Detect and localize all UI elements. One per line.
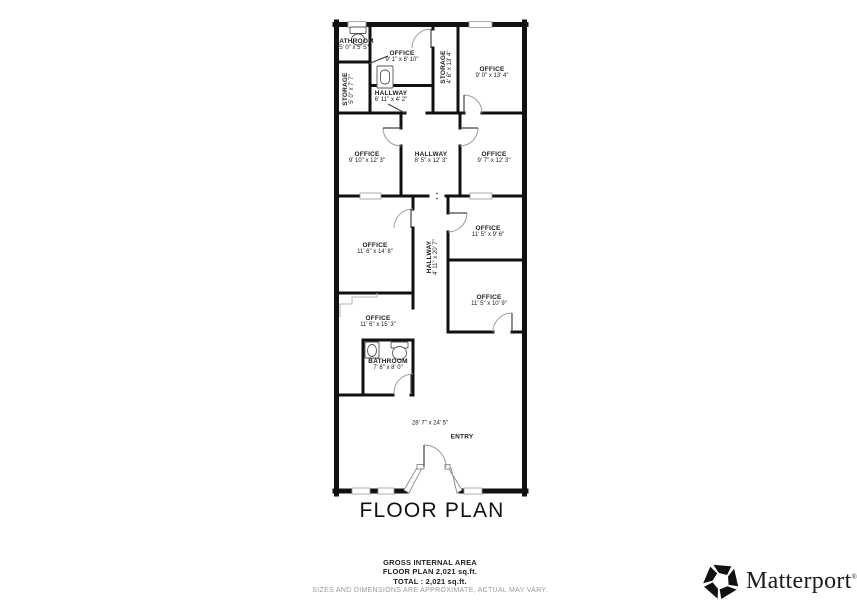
room-dimensions: 9' 1" x 8' 10": [386, 57, 419, 64]
opening-markers: [436, 193, 438, 200]
room-name: HALLWAY: [426, 239, 433, 275]
floor-plan-area-value: FLOOR PLAN 2,021 sq.ft.: [312, 567, 547, 576]
room-label: OFFICE9' 10" x 12' 3": [349, 151, 385, 165]
room-name: ENTRY: [451, 434, 474, 441]
room-dimensions: 11' 5" x 10' 9": [471, 301, 507, 308]
room-label: HALLWAY8' 5" x 12' 3": [415, 151, 448, 165]
room-name: STORAGE: [440, 50, 447, 83]
room-name: BATHROOM: [334, 38, 373, 45]
room-name: HALLWAY: [375, 90, 408, 97]
room-label: STORAGE4' 6" x 13' 4": [440, 50, 454, 83]
room-name: OFFICE: [472, 225, 504, 232]
room-name: OFFICE: [471, 294, 507, 301]
water-heater-icon: [377, 66, 393, 88]
room-label: OFFICE11' 5" x 10' 9": [471, 294, 507, 308]
disclaimer-text: SIZES AND DIMENSIONS ARE APPROXIMATE, AC…: [312, 586, 547, 596]
room-label: OFFICE11' 6" x 14' 8": [357, 242, 393, 256]
room-name: HALLWAY: [415, 151, 448, 158]
room-name: BATHROOM: [368, 358, 407, 365]
room-label: HALLWAY4' 11" x 20' 7": [426, 239, 440, 275]
footer: GROSS INTERNAL AREA FLOOR PLAN 2,021 sq.…: [312, 558, 547, 596]
gross-internal-area-label: GROSS INTERNAL AREA: [312, 558, 547, 567]
room-label: OFFICE11' 5" x 9' 6": [472, 225, 504, 239]
total-area-value: TOTAL : 2,021 sq.ft.: [312, 577, 547, 586]
room-dimensions: 5' 0" x 7' 7": [349, 72, 356, 105]
room-dimensions: 8' 5" x 12' 3": [415, 158, 448, 165]
room-dimensions: 9' 0" x 13' 4": [476, 73, 509, 80]
room-dimensions: 4' 11" x 20' 7": [433, 239, 440, 275]
room-dimensions: 7' 8" x 8' 0": [368, 365, 407, 372]
room-dimensions: 4' 6" x 13' 4": [447, 50, 454, 83]
room-label: OFFICE9' 1" x 8' 10": [386, 50, 419, 64]
matterport-logo: Matterport®: [702, 562, 857, 600]
sink-icon: [365, 342, 379, 358]
room-dimensions: 11' 6" x 15' 3": [360, 322, 396, 329]
room-label: STORAGE5' 0" x 7' 7": [342, 72, 356, 105]
room-dimensions: 9' 10" x 12' 3": [349, 158, 385, 165]
page-title: FLOOR PLAN: [359, 499, 504, 523]
room-name: OFFICE: [360, 315, 396, 322]
room-name: OFFICE: [478, 151, 511, 158]
partial-wall-line: [340, 293, 377, 317]
room-dimensions: 11' 5" x 9' 6": [472, 232, 504, 239]
room-dimensions: 9' 7" x 12' 3": [478, 158, 511, 165]
floor-plan-page: BATHROOM5' 0" x 5' 5"OFFICE9' 1" x 8' 10…: [0, 0, 857, 601]
room-dimensions: 28' 7" x 24' 5": [412, 421, 448, 428]
room-name: OFFICE: [476, 66, 509, 73]
room-dimensions: 5' 0" x 5' 5": [334, 45, 373, 52]
matterport-logo-icon: [702, 562, 740, 600]
room-label: BATHROOM5' 0" x 5' 5": [334, 38, 373, 52]
room-name: OFFICE: [349, 151, 385, 158]
registered-mark: ®: [852, 573, 857, 581]
room-label: OFFICE11' 6" x 15' 3": [360, 315, 396, 329]
matterport-wordmark: Matterport®: [746, 568, 857, 595]
room-name: STORAGE: [342, 72, 349, 105]
room-name: OFFICE: [386, 50, 419, 57]
room-label: 28' 7" x 24' 5": [412, 421, 448, 428]
room-dimensions: 6' 11" x 4' 2": [375, 97, 408, 104]
toilet-icon: [391, 342, 408, 360]
room-label: ENTRY: [451, 434, 474, 441]
room-label: OFFICE9' 7" x 12' 3": [478, 151, 511, 165]
entry-vestibule: [404, 465, 462, 494]
room-label: HALLWAY6' 11" x 4' 2": [375, 90, 408, 104]
room-label: OFFICE9' 0" x 13' 4": [476, 66, 509, 80]
room-label: BATHROOM7' 8" x 8' 0": [368, 358, 407, 372]
room-dimensions: 11' 6" x 14' 8": [357, 249, 393, 256]
room-name: OFFICE: [357, 242, 393, 249]
